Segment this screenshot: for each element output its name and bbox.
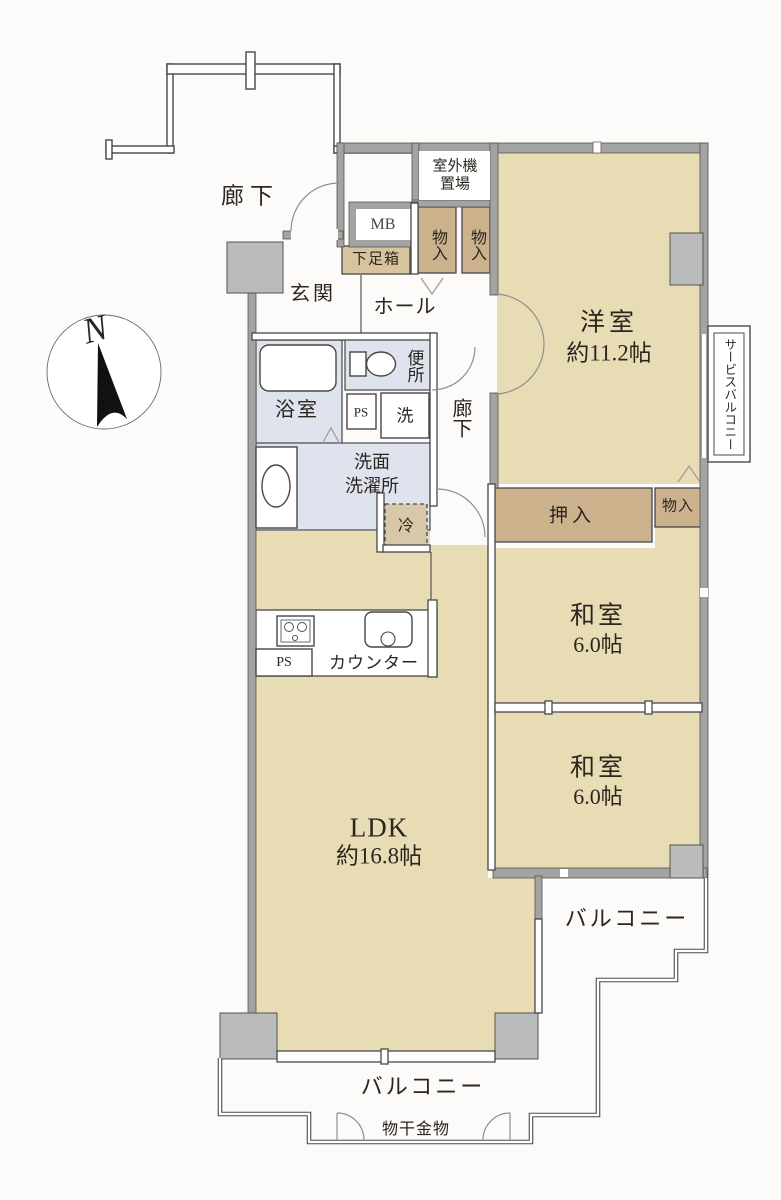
refrigerator-label: 冷 [398, 519, 414, 535]
floor-plan: 廊下 N 室外機 置場 MB 下足箱 物入 物入 玄関 ホール 便所 浴室 PS… [0, 0, 781, 1200]
entrance-door-arc [291, 183, 339, 231]
pillar-sw [220, 1013, 277, 1059]
bathroom-label: 浴室 [275, 400, 319, 420]
pipe-space-kitchen-label: PS [276, 656, 292, 670]
storage-b-label: 物入 [468, 229, 484, 261]
toilet-door-arc [432, 347, 475, 390]
counter-label: カウンター [329, 655, 419, 672]
ldk-door-arc [437, 489, 485, 537]
balcony-south-label: バルコニー [361, 1076, 486, 1098]
pillar-se [495, 1013, 538, 1059]
ldk-label: LDK [350, 815, 409, 842]
outdoor-unit-label-1: 室外機 [432, 160, 477, 175]
balcony-east-label: バルコニー [565, 908, 690, 930]
washroom-label-1: 洗面 [354, 453, 390, 471]
laundry-arc-right [483, 1113, 510, 1140]
meter-box-label: MB [371, 217, 396, 233]
sink-icon [365, 612, 412, 647]
japanese-room2-label: 和室 [570, 756, 626, 781]
storage-c-label: 物入 [662, 500, 694, 515]
floor-plan-drawing [0, 0, 781, 1200]
washroom-label-2: 洗濯所 [345, 477, 399, 495]
hall-label: ホール [374, 297, 437, 317]
laundry-arc-left [337, 1113, 364, 1140]
japanese-room2-size: 6.0帖 [573, 786, 623, 808]
corridor-label: 廊下 [450, 398, 470, 438]
western-room-size: 約11.2帖 [566, 342, 651, 365]
fusuma-partition [495, 703, 702, 712]
shared-corridor-label: 廊下 [221, 185, 279, 208]
closet-label: 押入 [549, 507, 595, 526]
stove-icon [277, 616, 314, 646]
pillar-east [670, 233, 703, 285]
laundry-hardware-label: 物干金物 [382, 1122, 450, 1138]
ldk-floor [256, 531, 430, 1053]
western-room-label: 洋室 [580, 311, 638, 336]
ldk-east-window [535, 919, 542, 1013]
bathtub-icon [260, 345, 336, 391]
pillar-entrance [227, 242, 283, 293]
washer-label: 洗 [397, 408, 414, 425]
entrance-label: 玄関 [290, 284, 336, 304]
shoe-box-label: 下足箱 [352, 253, 400, 268]
japanese-room1-label: 和室 [570, 604, 626, 629]
toilet-bowl-icon [367, 352, 396, 376]
vanity-sink-icon [262, 465, 290, 507]
toilet-label: 便所 [406, 349, 423, 383]
service-balcony-label: サービスバルコニー [723, 338, 736, 451]
storage-a-label: 物入 [429, 229, 445, 261]
entrance-door-opening [291, 229, 338, 240]
outdoor-unit-label-2: 置場 [440, 178, 470, 193]
pillar-e2 [670, 845, 703, 878]
japanese-room1-size: 6.0帖 [573, 634, 623, 656]
hall-step-marker [421, 278, 443, 294]
toilet-tank-icon [350, 352, 366, 376]
pipe-space-bath-label: PS [354, 406, 368, 419]
ldk-size: 約16.8帖 [336, 845, 422, 868]
